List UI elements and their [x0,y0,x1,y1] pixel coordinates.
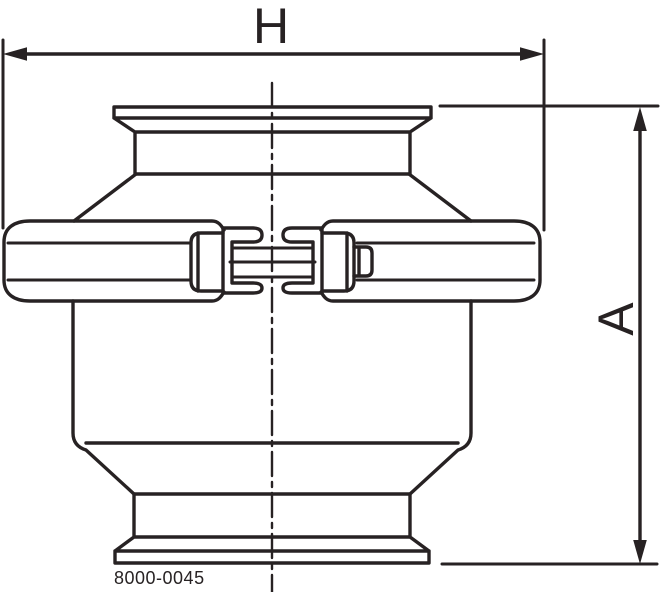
a-arrowhead-bottom [633,540,647,564]
drawing-strokes [3,40,658,592]
h-arrowhead-left [3,47,27,61]
a-arrowhead-top [633,107,647,131]
dimension-h [3,40,544,230]
a-dimension-label: A [588,302,644,336]
drawing-page: H A 8000-0045 [0,0,660,592]
clamp-bolt-tip [354,247,372,276]
technical-drawing-canvas: H A 8000-0045 [0,0,660,592]
h-arrowhead-right [520,47,544,61]
clamp-nut-right [322,233,354,291]
part-number: 8000-0045 [114,568,205,588]
clamp-nut-left [191,233,223,291]
h-dimension-label: H [253,0,289,54]
